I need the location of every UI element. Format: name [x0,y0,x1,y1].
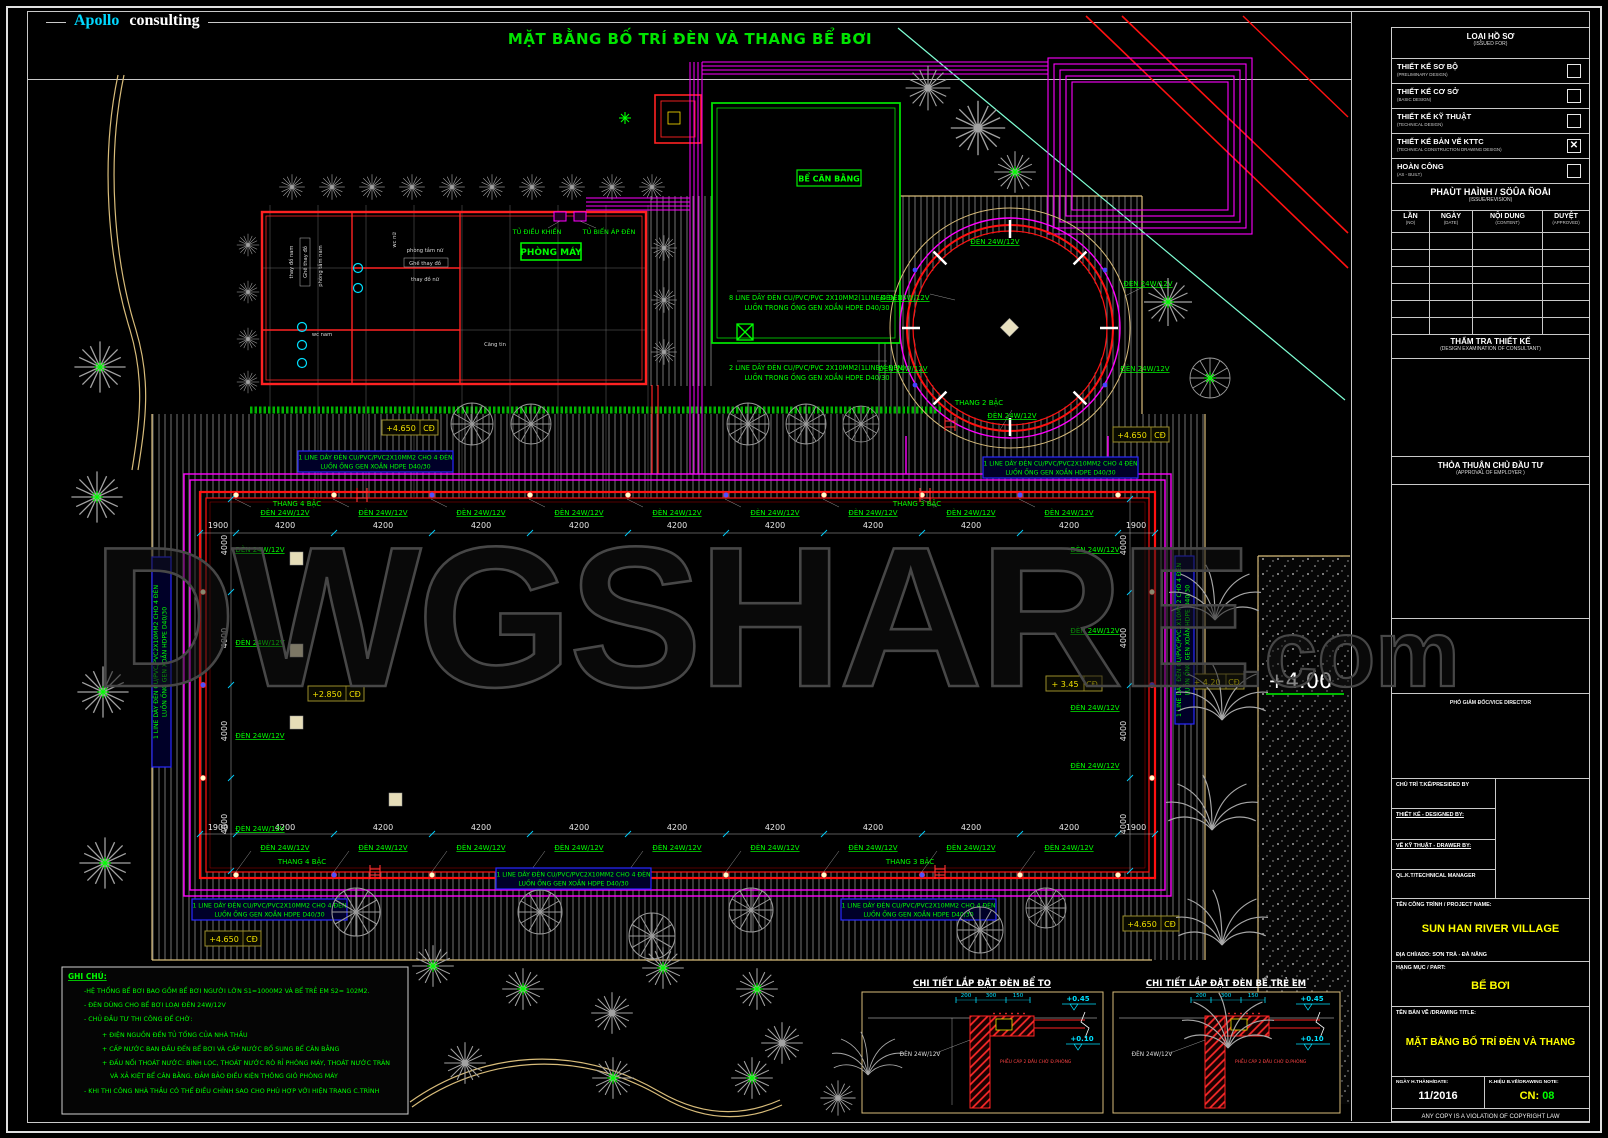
den-label: ĐÈN 24W/12V [946,843,995,852]
room-label: phòng tắm nữ [407,247,444,254]
wiring-note-box: 1 LINE DÂY ĐÈN CU/PVC/PVC2X10MM2 CHO 4 Đ… [192,899,347,920]
den-label: ĐÈN 24W/12V [235,638,284,647]
transformer-cabinet [574,212,586,221]
svg-text:CĐ: CĐ [246,935,258,944]
room-label: Ghế thay đồ [301,246,309,278]
svg-text:1 LINE DÂY ĐÈN CU/PVC/PVC2X10M: 1 LINE DÂY ĐÈN CU/PVC/PVC2X10MM2 CHO 4 Đ… [1174,563,1183,717]
stage-basic: THIẾT KẾ CƠ SỞ(BASIC DESIGN) [1392,84,1589,109]
den-label: ĐÈN 24W/12V [848,843,897,852]
svg-text:4200: 4200 [373,521,393,530]
svg-text:+0.10: +0.10 [1300,1035,1323,1043]
svg-text:CĐ: CĐ [1164,920,1176,929]
exam-header: THẨM TRA THIẾT KẾ (DESIGN EXAMINATION OF… [1392,335,1589,359]
checkbox [1567,89,1581,103]
svg-text:8 LINE DÂY ĐÈN CU/PVC/PVC 2X10: 8 LINE DÂY ĐÈN CU/PVC/PVC 2X10MM2(1LINE/… [729,293,905,302]
den-label: ĐÈN 24W/12V [946,508,995,517]
den-label: ĐÈN 24W/12V [878,364,927,373]
stage-technical: THIẾT KẾ KỸ THUẬT(TECHNICAL DESIGN) [1392,109,1589,134]
wiring-note-box-vertical: 1 LINE DÂY ĐÈN CU/PVC/PVC2X10MM2 CHO 4 Đ… [151,557,171,767]
control-cabinet [554,212,566,221]
svg-text:4200: 4200 [471,823,491,832]
svg-text:4200: 4200 [275,521,295,530]
den-label: ĐÈN 24W/12V [1070,545,1119,554]
den-label: ĐÈN 24W/12V [456,843,505,852]
exam-signature-area [1392,359,1589,457]
part-section: HẠNG MỤC / PART: BỂ BƠI [1392,962,1589,1007]
room-label: phòng tắm nam [317,245,324,286]
svg-text:+4.650: +4.650 [1117,431,1147,440]
elevation-marker: +4.650CĐ [205,931,261,946]
ladder-label: THANG 2 BẬC [954,398,1003,407]
den-label: ĐÈN 24W/12V [358,508,407,517]
ladder-label: THANG 3 BẬC [892,499,941,508]
den-label: ĐÈN 24W/12V [1044,843,1093,852]
room-label: thay đồ nữ [411,275,440,283]
main-pool-water [206,498,1149,872]
drawing-canvas: thay đồ nam Ghế thay đồ phòng tắm nam wc… [0,0,1352,1138]
svg-text:1900: 1900 [208,521,228,530]
control-cabinet-label: TỦ ĐIỀU KHIỂN [512,226,562,236]
den-label: ĐÈN 24W/12V [1070,626,1119,635]
wiring-note-box: 1 LINE DÂY ĐÈN CU/PVC/PVC2X10MM2 CHO 4 Đ… [983,457,1138,478]
elevation-marker: + 4.20CĐ [1188,674,1244,689]
project-address: ĐỊA CHỈ/ADD: SƠN TRÀ - ĐÀ NẴNG [1396,952,1487,958]
den-label: ĐÈN 24W/12V [880,293,929,302]
den-label: ĐÈN 24W/12V [848,508,897,517]
ladder-label: THANG 4 BẬC [277,857,326,866]
svg-text:LUỒN TRONG ỐNG GEN XOẮN HDPE D: LUỒN TRONG ỐNG GEN XOẮN HDPE D40/30 [744,302,889,312]
den-label: ĐÈN 24W/12V [1123,279,1172,288]
detail-den-label: ĐÈN 24W/12V [900,1050,941,1058]
signature-grid: CHỦ TRÌ T.KẾ/PRESIDED BY THIẾT KẾ - DESI… [1392,779,1589,899]
wiring-note-box: 1 LINE DÂY ĐÈN CU/PVC/PVC2X10MM2 CHO 4 Đ… [298,451,453,472]
elevation-marker: +4.650CĐ [1113,427,1169,442]
date-value: 11/2016 [1392,1090,1484,1102]
svg-text:4200: 4200 [765,823,785,832]
svg-text:4200: 4200 [765,521,785,530]
date-code-row: NGÀY H.THÀNH/DATE: 11/2016 K.HIỆU B.VẼ/D… [1392,1077,1589,1109]
checkbox [1567,114,1581,128]
checkbox [1567,64,1581,78]
general-notes: GHI CHÚ: -HỆ THỐNG BỂ BƠI BAO GỒM BỂ BƠI… [62,967,408,1114]
svg-text:4200: 4200 [471,521,491,530]
svg-text:150: 150 [1248,993,1259,999]
signature-empty-cell [1496,779,1589,898]
den-label: ĐÈN 24W/12V [652,508,701,517]
room-label: wc nam [312,332,332,338]
svg-text:4200: 4200 [667,521,687,530]
den-label: ĐÈN 24W/12V [456,508,505,517]
project-name-section: TÊN CÔNG TRÌNH / PROJECT NAME: SUN HAN R… [1392,899,1589,962]
drawing-title-section: TÊN BẢN VẼ /DRAWING TITLE: MẶT BẰNG BỐ T… [1392,1007,1589,1077]
svg-text:4000: 4000 [1119,628,1128,648]
svg-text:1 LINE DÂY ĐÈN CU/PVC/PVC2X10M: 1 LINE DÂY ĐÈN CU/PVC/PVC2X10MM2 CHO 4 Đ… [192,901,346,910]
cad-sheet: Apollo consulting MẶT BẰNG BỐ TRÍ ĐÈN VÀ… [0,0,1608,1138]
transformer-cabinet-label: TỦ BIẾN ÁP ĐÈN [582,226,636,236]
den-label: ĐÈN 24W/12V [1044,508,1093,517]
den-label: ĐÈN 24W/12V [260,508,309,517]
den-label: ĐÈN 24W/12V [1070,703,1119,712]
svg-text:CĐ: CĐ [423,424,435,433]
room-label: Ghế thay đồ [409,259,441,267]
svg-text:1 LINE DÂY ĐÈN CU/PVC/PVC2X10M: 1 LINE DÂY ĐÈN CU/PVC/PVC2X10MM2 CHO 4 Đ… [151,585,160,739]
svg-text:4200: 4200 [667,823,687,832]
technical-manager: QL.K.T/TECHNICAL MANAGER [1392,870,1495,899]
checkbox [1567,164,1581,178]
svg-text:+4.650: +4.650 [386,424,416,433]
svg-text:1 LINE DÂY ĐÈN CU/PVC/PVC2X10M: 1 LINE DÂY ĐÈN CU/PVC/PVC2X10MM2 CHO 4 Đ… [496,870,650,879]
drawing-title-name: MẶT BẰNG BỐ TRÍ ĐÈN VÀ THANG [1392,1037,1589,1048]
svg-text:LUỒN TRONG ỐNG GEN XOẮN HDPE D: LUỒN TRONG ỐNG GEN XOẮN HDPE D40/30 [744,372,889,382]
revision-table-rows [1392,233,1589,335]
svg-text:4200: 4200 [961,521,981,530]
svg-text:4000: 4000 [220,628,229,648]
svg-text:4000: 4000 [1119,721,1128,741]
checkbox-checked: ✕ [1567,139,1581,153]
svg-text:4200: 4200 [1059,521,1079,530]
approval-signature-area [1392,485,1589,619]
approval-signature-area-2 [1392,619,1589,694]
svg-text:4200: 4200 [863,521,883,530]
stage-construction-drawing: THIẾT KẾ BẢN VẼ KTTC(TECHNICAL CONSTRUCT… [1392,134,1589,159]
den-label: ĐÈN 24W/12V [970,237,1019,246]
approval-header: THỎA THUẬN CHỦ ĐẦU TƯ (APPROVAL OF EMPLO… [1392,457,1589,485]
den-label: ĐÈN 24W/12V [750,843,799,852]
den-label: ĐÈN 24W/12V [750,508,799,517]
svg-text:4200: 4200 [863,823,883,832]
title-block: LOẠI HỒ SƠ (ISSUED FOR) THIẾT KẾ SƠ BỘ(P… [1391,27,1590,1122]
ladder-label: THANG 4 BẬC [272,499,321,508]
project-name: SUN HAN RIVER VILLAGE [1392,923,1589,935]
svg-text:4200: 4200 [961,823,981,832]
svg-text:CĐ: CĐ [349,690,361,699]
svg-text:+4.650: +4.650 [209,935,239,944]
svg-text:1 LINE DÂY ĐÈN CU/PVC/PVC2X10M: 1 LINE DÂY ĐÈN CU/PVC/PVC2X10MM2 CHO 4 Đ… [983,459,1137,468]
room-label: wc nữ [392,232,398,248]
doc-type-header: LOẠI HỒ SƠ (ISSUED FOR) [1392,28,1589,59]
den-label: ĐÈN 24W/12V [1070,761,1119,770]
room-label: Căng tin [484,342,506,348]
copyright-note: ANY COPY IS A VIOLATION OF COPYRIGHT LAW [1392,1109,1589,1120]
svg-text:200: 200 [961,993,972,999]
svg-text:+0.45: +0.45 [1066,995,1089,1003]
svg-text:+ 3.45: + 3.45 [1051,680,1078,689]
den-label: ĐÈN 24W/12V [652,843,701,852]
den-label: ĐÈN 24W/12V [235,545,284,554]
designed-by: THIẾT KẾ - DESIGNED BY: [1392,809,1495,840]
revision-table-header: LẦN(NO) NGÀY(DATE) NỘI DUNG(CONTENT) DUY… [1392,211,1589,233]
den-label: ĐÈN 24W/12V [235,824,284,833]
drawing-code: CN: 08 [1485,1090,1589,1102]
svg-text:4000: 4000 [1119,814,1128,834]
svg-text:4000: 4000 [220,535,229,555]
terrace-elevation: +4.00 [1268,669,1332,693]
stage-preliminary: THIẾT KẾ SƠ BỘ(PRELIMINARY DESIGN) [1392,59,1589,84]
den-label: ĐÈN 24W/12V [260,843,309,852]
drawer-by: VẼ KỸ THUẬT - DRAWER BY: [1392,840,1495,870]
wiring-note-box: 1 LINE DÂY ĐÈN CU/PVC/PVC2X10MM2 CHO 4 Đ… [496,868,651,889]
notes-title: GHI CHÚ: [68,972,107,981]
cable-note-8line: 8 LINE DÂY ĐÈN CU/PVC/PVC 2X10MM2(1LINE/… [729,291,905,312]
svg-text:1900: 1900 [1126,823,1146,832]
vice-director-area: PHÓ GIÁM ĐỐC/VICE DIRECTOR [1392,694,1589,779]
svg-text:4000: 4000 [220,814,229,834]
machine-room-label: PHÒNG MÁY [520,246,582,258]
elevation-marker: +2.850CĐ [308,686,364,701]
detail-title: CHI TIẾT LẮP ĐẶT ĐÈN BỂ TO [913,976,1051,989]
svg-text:4200: 4200 [1059,823,1079,832]
svg-text:4200: 4200 [569,823,589,832]
elevation-marker: +4.650CĐ [1123,916,1179,931]
room-label: thay đồ nam [287,246,295,279]
svg-text:4200: 4200 [569,521,589,530]
svg-text:4000: 4000 [220,721,229,741]
svg-text:CĐ: CĐ [1086,680,1098,689]
svg-text:CĐ: CĐ [1154,431,1166,440]
svg-text:+0.10: +0.10 [1070,1035,1093,1043]
den-label: ĐÈN 24W/12V [987,411,1036,420]
svg-text:200: 200 [1196,993,1207,999]
svg-text:4200: 4200 [373,823,393,832]
den-label: ĐÈN 24W/12V [554,508,603,517]
detail-big-pool: CHI TIẾT LẮP ĐẶT ĐÈN BỂ TO 200 300 150 Đ… [862,976,1103,1113]
svg-text:1 LINE DÂY ĐÈN CU/PVC/PVC2X10M: 1 LINE DÂY ĐÈN CU/PVC/PVC2X10MM2 CHO 4 Đ… [298,453,452,462]
stage-as-built: HOÀN CÔNG(AS - BUILT) [1392,159,1589,184]
den-label: ĐÈN 24W/12V [358,843,407,852]
svg-text:4000: 4000 [1119,535,1128,555]
svg-text:1900: 1900 [1126,521,1146,530]
presided-by: CHỦ TRÌ T.KẾ/PRESIDED BY [1392,779,1495,809]
elevation-marker: + 3.45CĐ [1046,676,1102,691]
svg-text:300: 300 [986,993,997,999]
den-label: ĐÈN 24W/12V [235,731,284,740]
part-name: BỂ BƠI [1392,980,1589,992]
detail-den-label: ĐÈN 24W/12V [1132,1050,1173,1058]
svg-text:300: 300 [1221,993,1232,999]
den-label: ĐÈN 24W/12V [1120,364,1169,373]
ladder-label: THANG 3 BẬC [885,857,934,866]
issue-revision-header: PHAÙT HAÌNH / SÖÛA ÑOÅI (ISSUE/REVISION) [1392,184,1589,211]
svg-text:+2.850: +2.850 [312,690,342,699]
den-label: ĐÈN 24W/12V [554,843,603,852]
wiring-note-box-vertical: 1 LINE DÂY ĐÈN CU/PVC/PVC2X10MM2 CHO 4 Đ… [1174,556,1194,724]
elevation-marker: +4.650CĐ [382,420,438,435]
svg-text:+0.45: +0.45 [1300,995,1323,1003]
svg-text:150: 150 [1013,993,1024,999]
svg-text:+4.650: +4.650 [1127,920,1157,929]
